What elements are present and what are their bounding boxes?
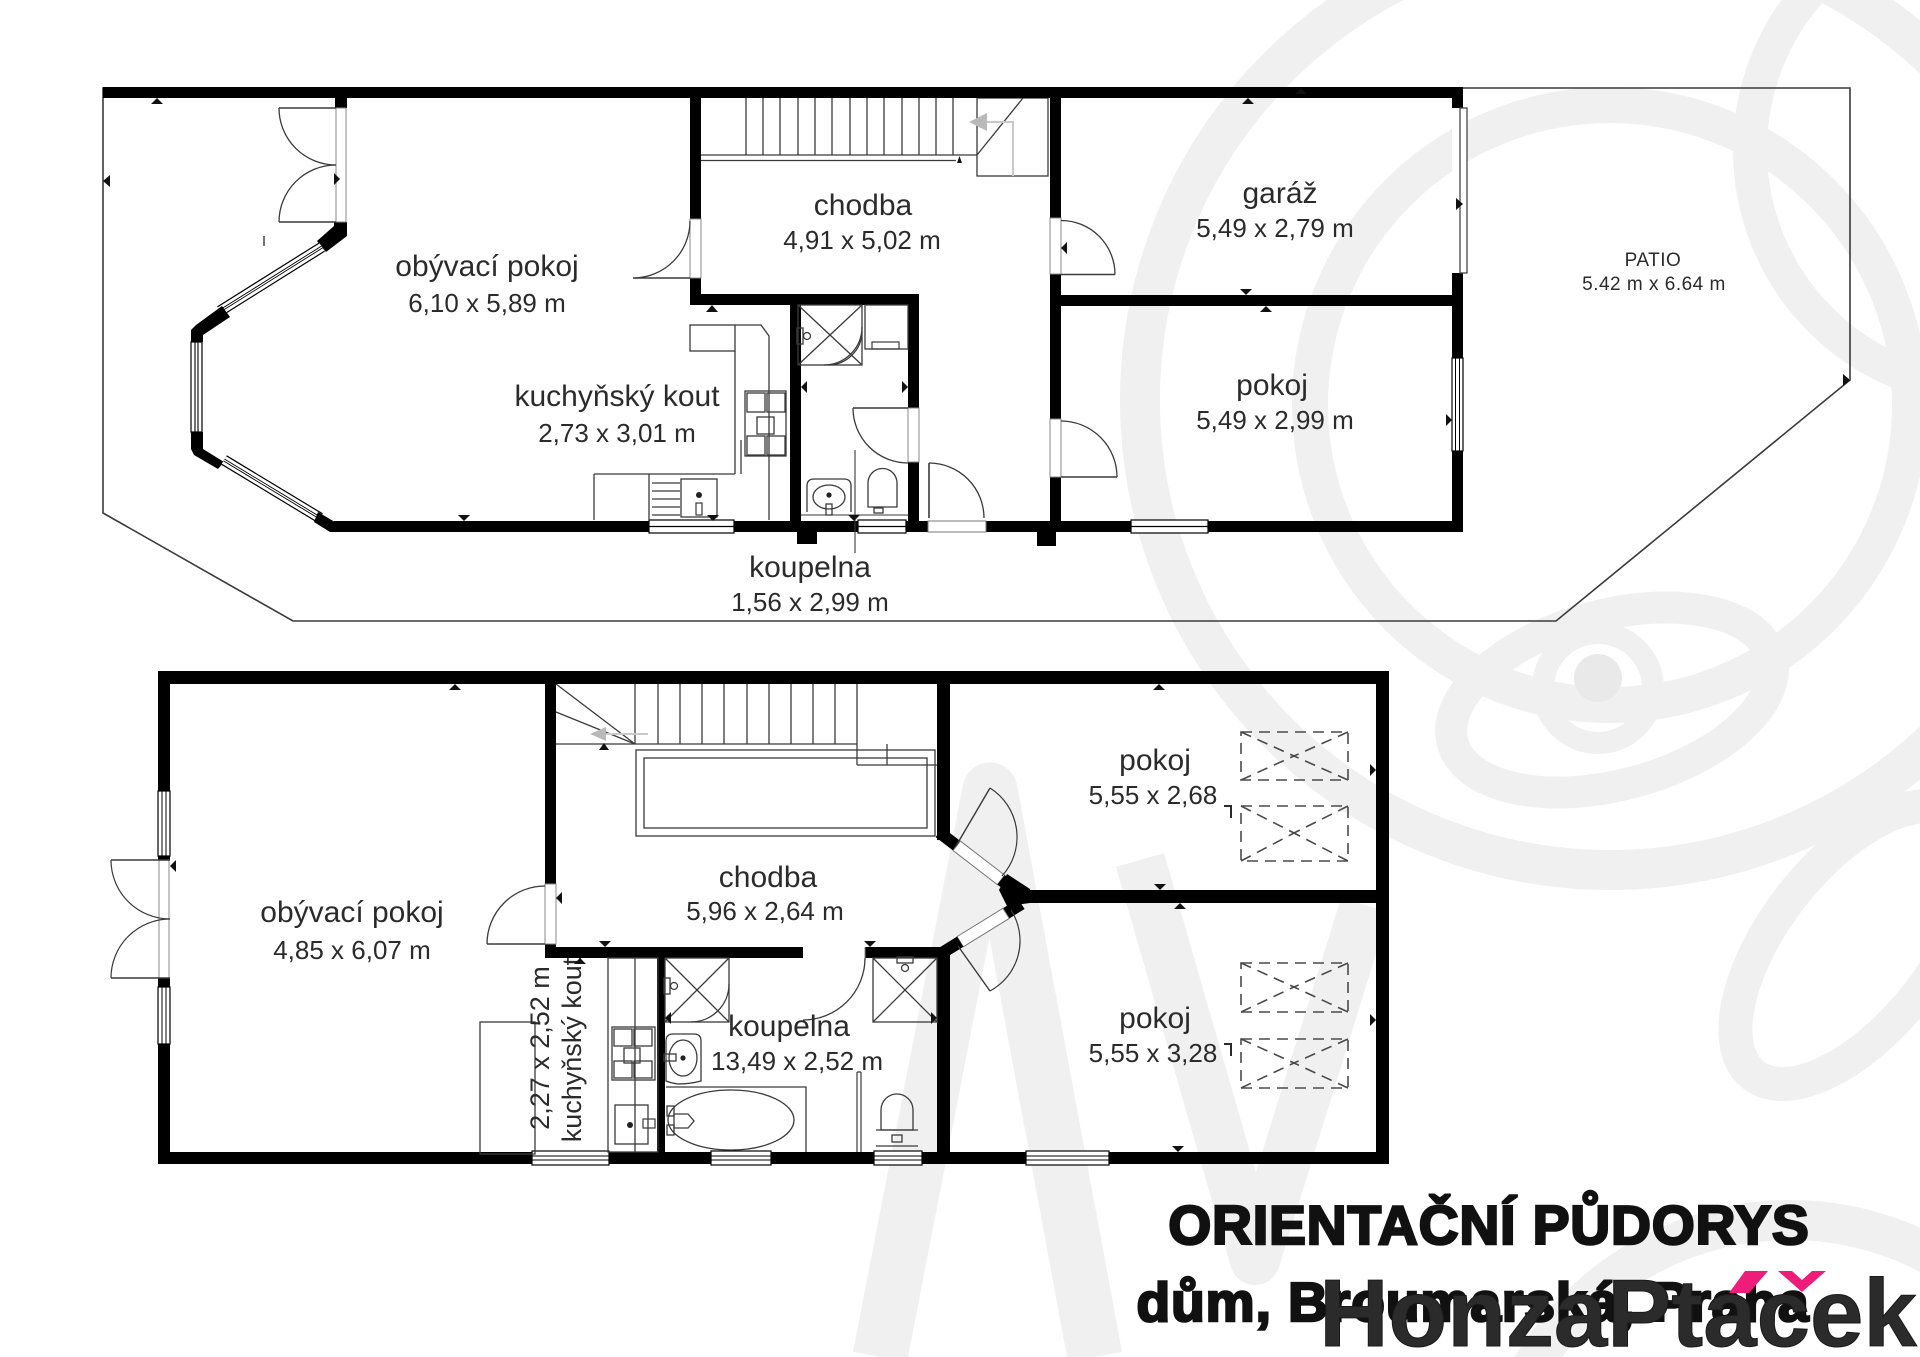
svg-text:2,73 x 3,01 m: 2,73 x 3,01 m bbox=[538, 418, 696, 448]
svg-text:chodba: chodba bbox=[814, 189, 913, 222]
svg-text:5.42 m x 6.64 m: 5.42 m x 6.64 m bbox=[1582, 274, 1726, 295]
svg-text:chodba: chodba bbox=[719, 861, 818, 894]
svg-text:1,56 x 2,99 m: 1,56 x 2,99 m bbox=[731, 587, 889, 617]
svg-text:garáž: garáž bbox=[1242, 177, 1317, 210]
svg-text:koupelna: koupelna bbox=[728, 1010, 850, 1043]
svg-text:obývací pokoj: obývací pokoj bbox=[260, 896, 443, 929]
svg-text:pokoj: pokoj bbox=[1119, 1002, 1191, 1035]
svg-text:5,55 x 3,28: 5,55 x 3,28 bbox=[1089, 1038, 1218, 1068]
svg-text:5,55 x 2,68: 5,55 x 2,68 bbox=[1089, 780, 1218, 810]
svg-text:PATIO: PATIO bbox=[1625, 250, 1682, 271]
svg-text:obývací pokoj: obývací pokoj bbox=[395, 250, 578, 283]
svg-text:HonzaPtacek: HonzaPtacek bbox=[1319, 1260, 1917, 1357]
svg-text:5,49 x 2,99 m: 5,49 x 2,99 m bbox=[1196, 405, 1354, 435]
svg-text:kuchyňský kout: kuchyňský kout bbox=[514, 380, 720, 413]
svg-text:2,27 x 2,52 m: 2,27 x 2,52 m bbox=[525, 966, 555, 1130]
svg-text:4,91 x 5,02 m: 4,91 x 5,02 m bbox=[783, 225, 941, 255]
svg-text:4,85 x 6,07 m: 4,85 x 6,07 m bbox=[273, 935, 431, 965]
svg-text:pokoj: pokoj bbox=[1119, 744, 1191, 777]
svg-text:koupelna: koupelna bbox=[749, 551, 871, 584]
svg-text:6,10 x 5,89 m: 6,10 x 5,89 m bbox=[408, 288, 566, 318]
svg-text:pokoj: pokoj bbox=[1236, 369, 1308, 402]
svg-text:5,96 x 2,64 m: 5,96 x 2,64 m bbox=[686, 896, 844, 926]
svg-text:5,49 x 2,79 m: 5,49 x 2,79 m bbox=[1196, 213, 1354, 243]
svg-text:13,49 x 2,52 m: 13,49 x 2,52 m bbox=[711, 1046, 883, 1076]
svg-text:ORIENTAČNÍ PŮDORYS: ORIENTAČNÍ PŮDORYS bbox=[1168, 1190, 1809, 1256]
svg-text:kuchyňský kout: kuchyňský kout bbox=[557, 957, 587, 1142]
